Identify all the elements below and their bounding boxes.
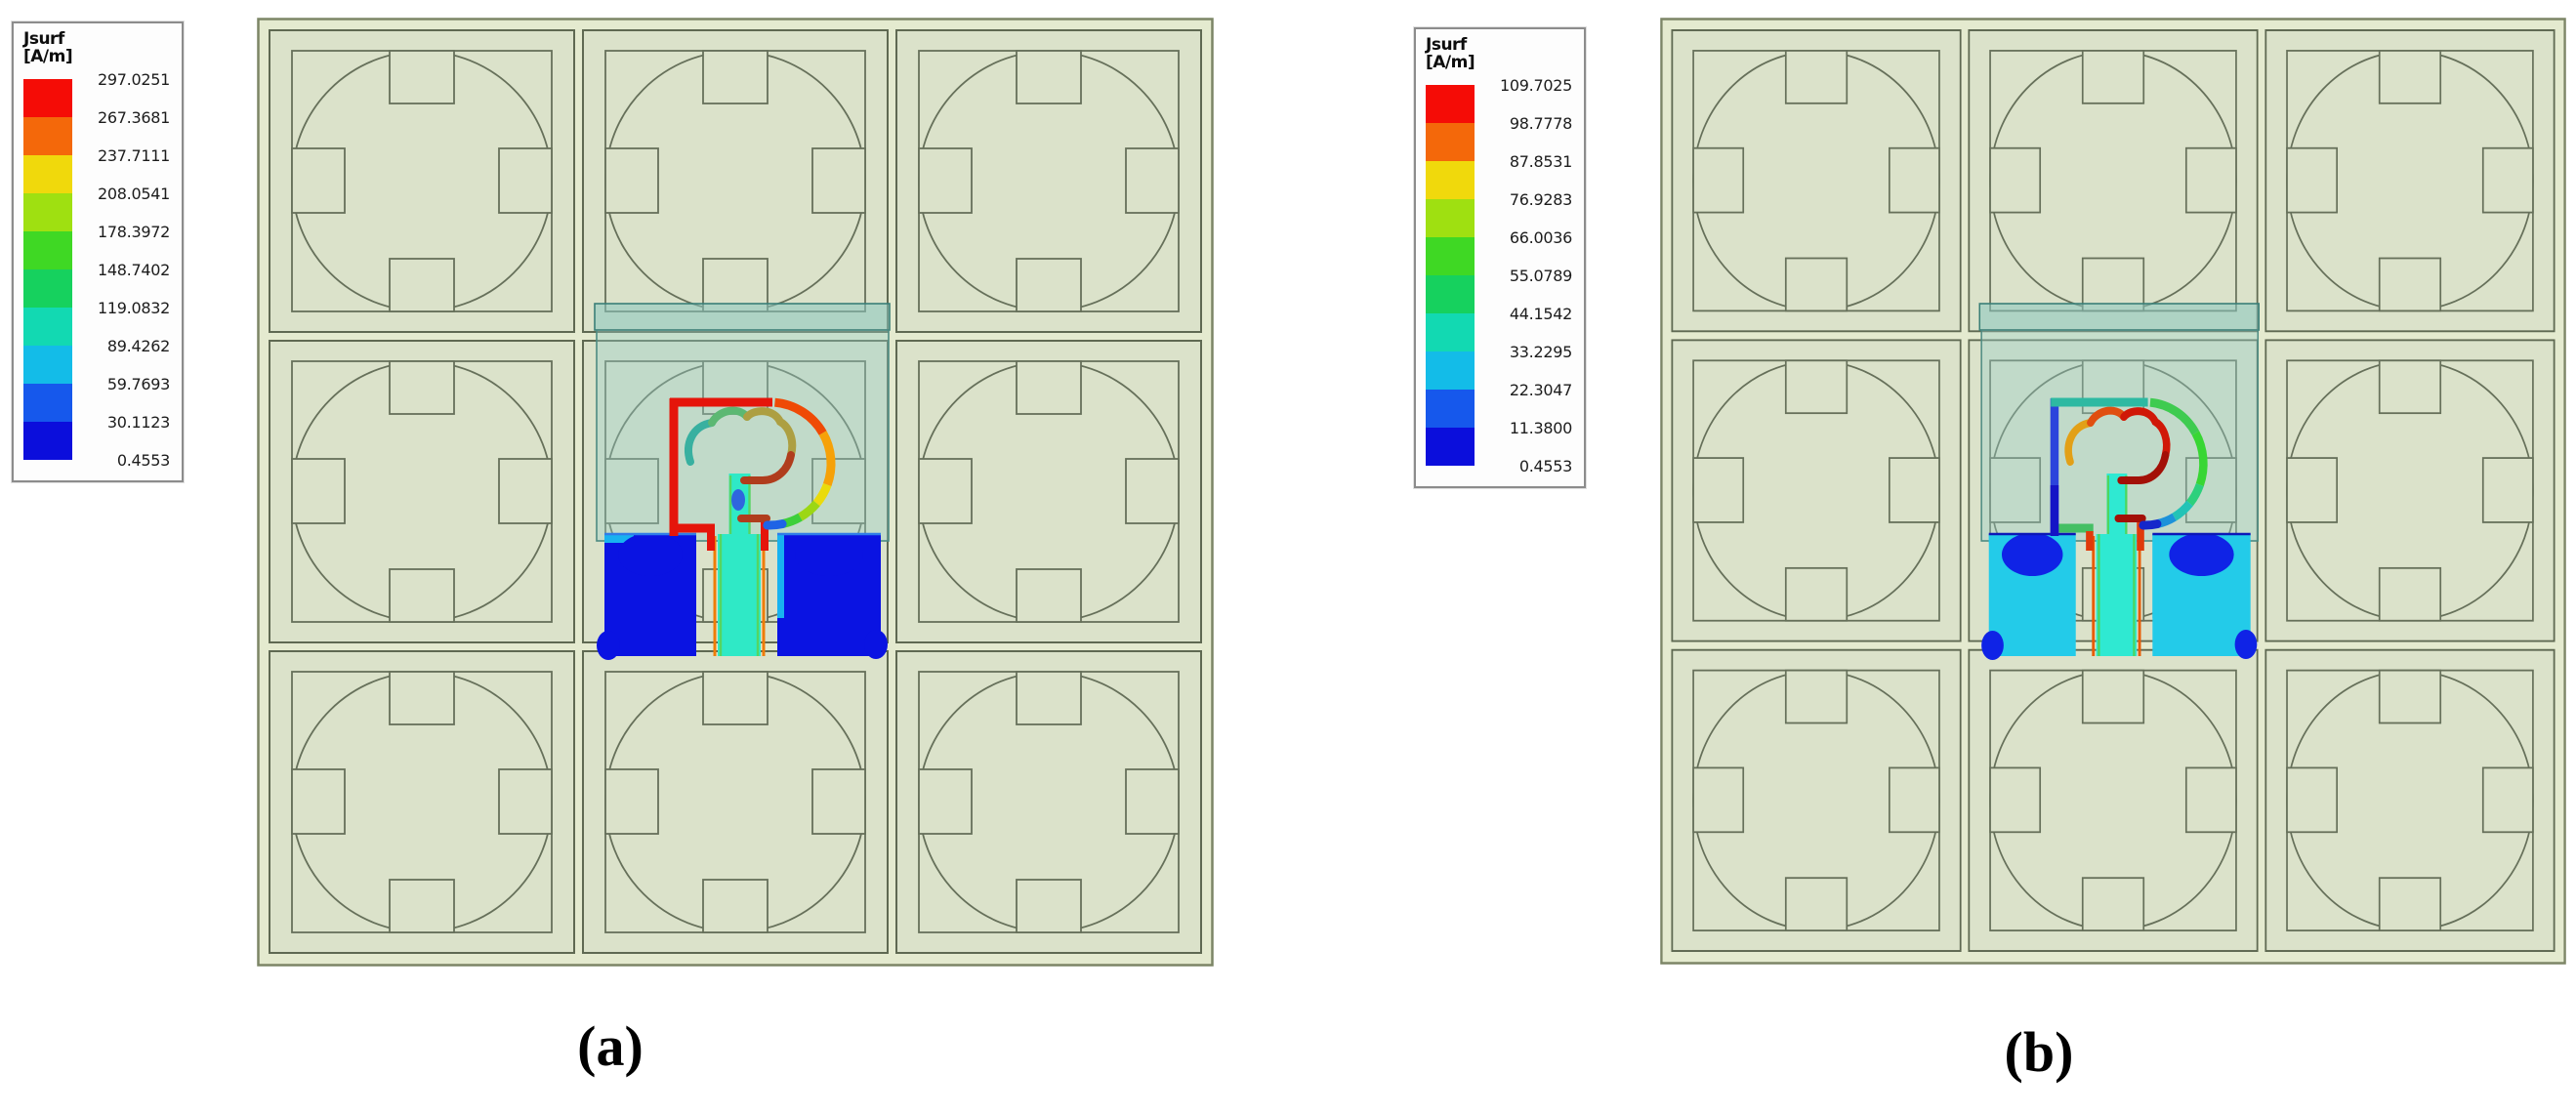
colorbar-band <box>23 117 72 155</box>
colorbar-value: 55.0789 <box>1471 267 1572 285</box>
colorbar-value: 87.8531 <box>1471 152 1572 171</box>
colorbar-title: Jsurf [A/m] <box>1426 36 1475 71</box>
colorbar-bands <box>1426 85 1475 466</box>
colorbar-band <box>23 231 72 269</box>
colorbar-value: 237.7111 <box>68 146 170 165</box>
colorbar-band <box>23 384 72 422</box>
colorbar-value: 33.2295 <box>1471 343 1572 361</box>
colorbar-title-line2: [A/m] <box>1426 54 1475 71</box>
colorbar-band <box>23 79 72 117</box>
colorbar-band <box>1426 161 1475 199</box>
antenna-array-a <box>257 18 1214 970</box>
colorbar-value: 98.7778 <box>1471 114 1572 133</box>
colorbar-value: 148.7402 <box>68 261 170 279</box>
colorbar-values: 297.0251267.3681237.7111208.0541178.3972… <box>68 79 174 470</box>
colorbar-band <box>1426 123 1475 161</box>
colorbar-value: 66.0036 <box>1471 228 1572 247</box>
colorbar-band <box>23 308 72 346</box>
colorbar-band <box>1426 199 1475 237</box>
colorbar-band <box>1426 390 1475 428</box>
figure-panel-a: Jsurf [A/m] 297.0251267.3681237.7111208.… <box>0 0 1279 1114</box>
colorbar-band <box>1426 275 1475 313</box>
colorbar-value: 22.3047 <box>1471 381 1572 399</box>
colorbar-band <box>1426 351 1475 390</box>
colorbar-value: 297.0251 <box>68 70 170 89</box>
colorbar-value: 178.3972 <box>68 223 170 241</box>
colorbar-title: Jsurf [A/m] <box>23 30 72 65</box>
colorbar-value: 208.0541 <box>68 185 170 203</box>
colorbar-title-line2: [A/m] <box>23 48 72 65</box>
colorbar-band <box>23 269 72 308</box>
colorbar-value: 59.7693 <box>68 375 170 393</box>
antenna-array-b <box>1660 18 2566 968</box>
figure-panel-b: Jsurf [A/m] 109.702598.777887.853176.928… <box>1402 0 2576 1114</box>
colorbar-value: 267.3681 <box>68 108 170 127</box>
colorbar-value: 0.4553 <box>68 451 170 470</box>
colorbar-band <box>23 346 72 384</box>
driven-element-overlay <box>1967 298 2263 669</box>
colorbar-band <box>1426 85 1475 123</box>
colorbar-band <box>23 422 72 460</box>
colorbar-value: 76.9283 <box>1471 190 1572 209</box>
subfigure-caption-a: (a) <box>513 1013 708 1079</box>
colorbar-values: 109.702598.777887.853176.928366.003655.0… <box>1471 85 1576 475</box>
colorbar-value: 30.1123 <box>68 413 170 432</box>
colorbar-legend-b: Jsurf [A/m] 109.702598.777887.853176.928… <box>1414 27 1586 488</box>
colorbar-value: 44.1542 <box>1471 305 1572 323</box>
colorbar-band <box>1426 313 1475 351</box>
colorbar-value: 119.0832 <box>68 299 170 317</box>
colorbar-value: 89.4262 <box>68 337 170 355</box>
colorbar-band <box>23 155 72 193</box>
colorbar-band <box>1426 428 1475 466</box>
colorbar-value: 109.7025 <box>1471 76 1572 95</box>
colorbar-bands <box>23 79 72 460</box>
colorbar-value: 0.4553 <box>1471 457 1572 475</box>
colorbar-legend-a: Jsurf [A/m] 297.0251267.3681237.7111208.… <box>12 21 184 482</box>
colorbar-title-line1: Jsurf <box>1426 36 1475 54</box>
colorbar-band <box>1426 237 1475 275</box>
colorbar-value: 11.3800 <box>1471 419 1572 437</box>
colorbar-title-line1: Jsurf <box>23 30 72 48</box>
driven-element-overlay <box>581 298 893 669</box>
colorbar-band <box>23 193 72 231</box>
subfigure-caption-b: (b) <box>1941 1019 2137 1085</box>
